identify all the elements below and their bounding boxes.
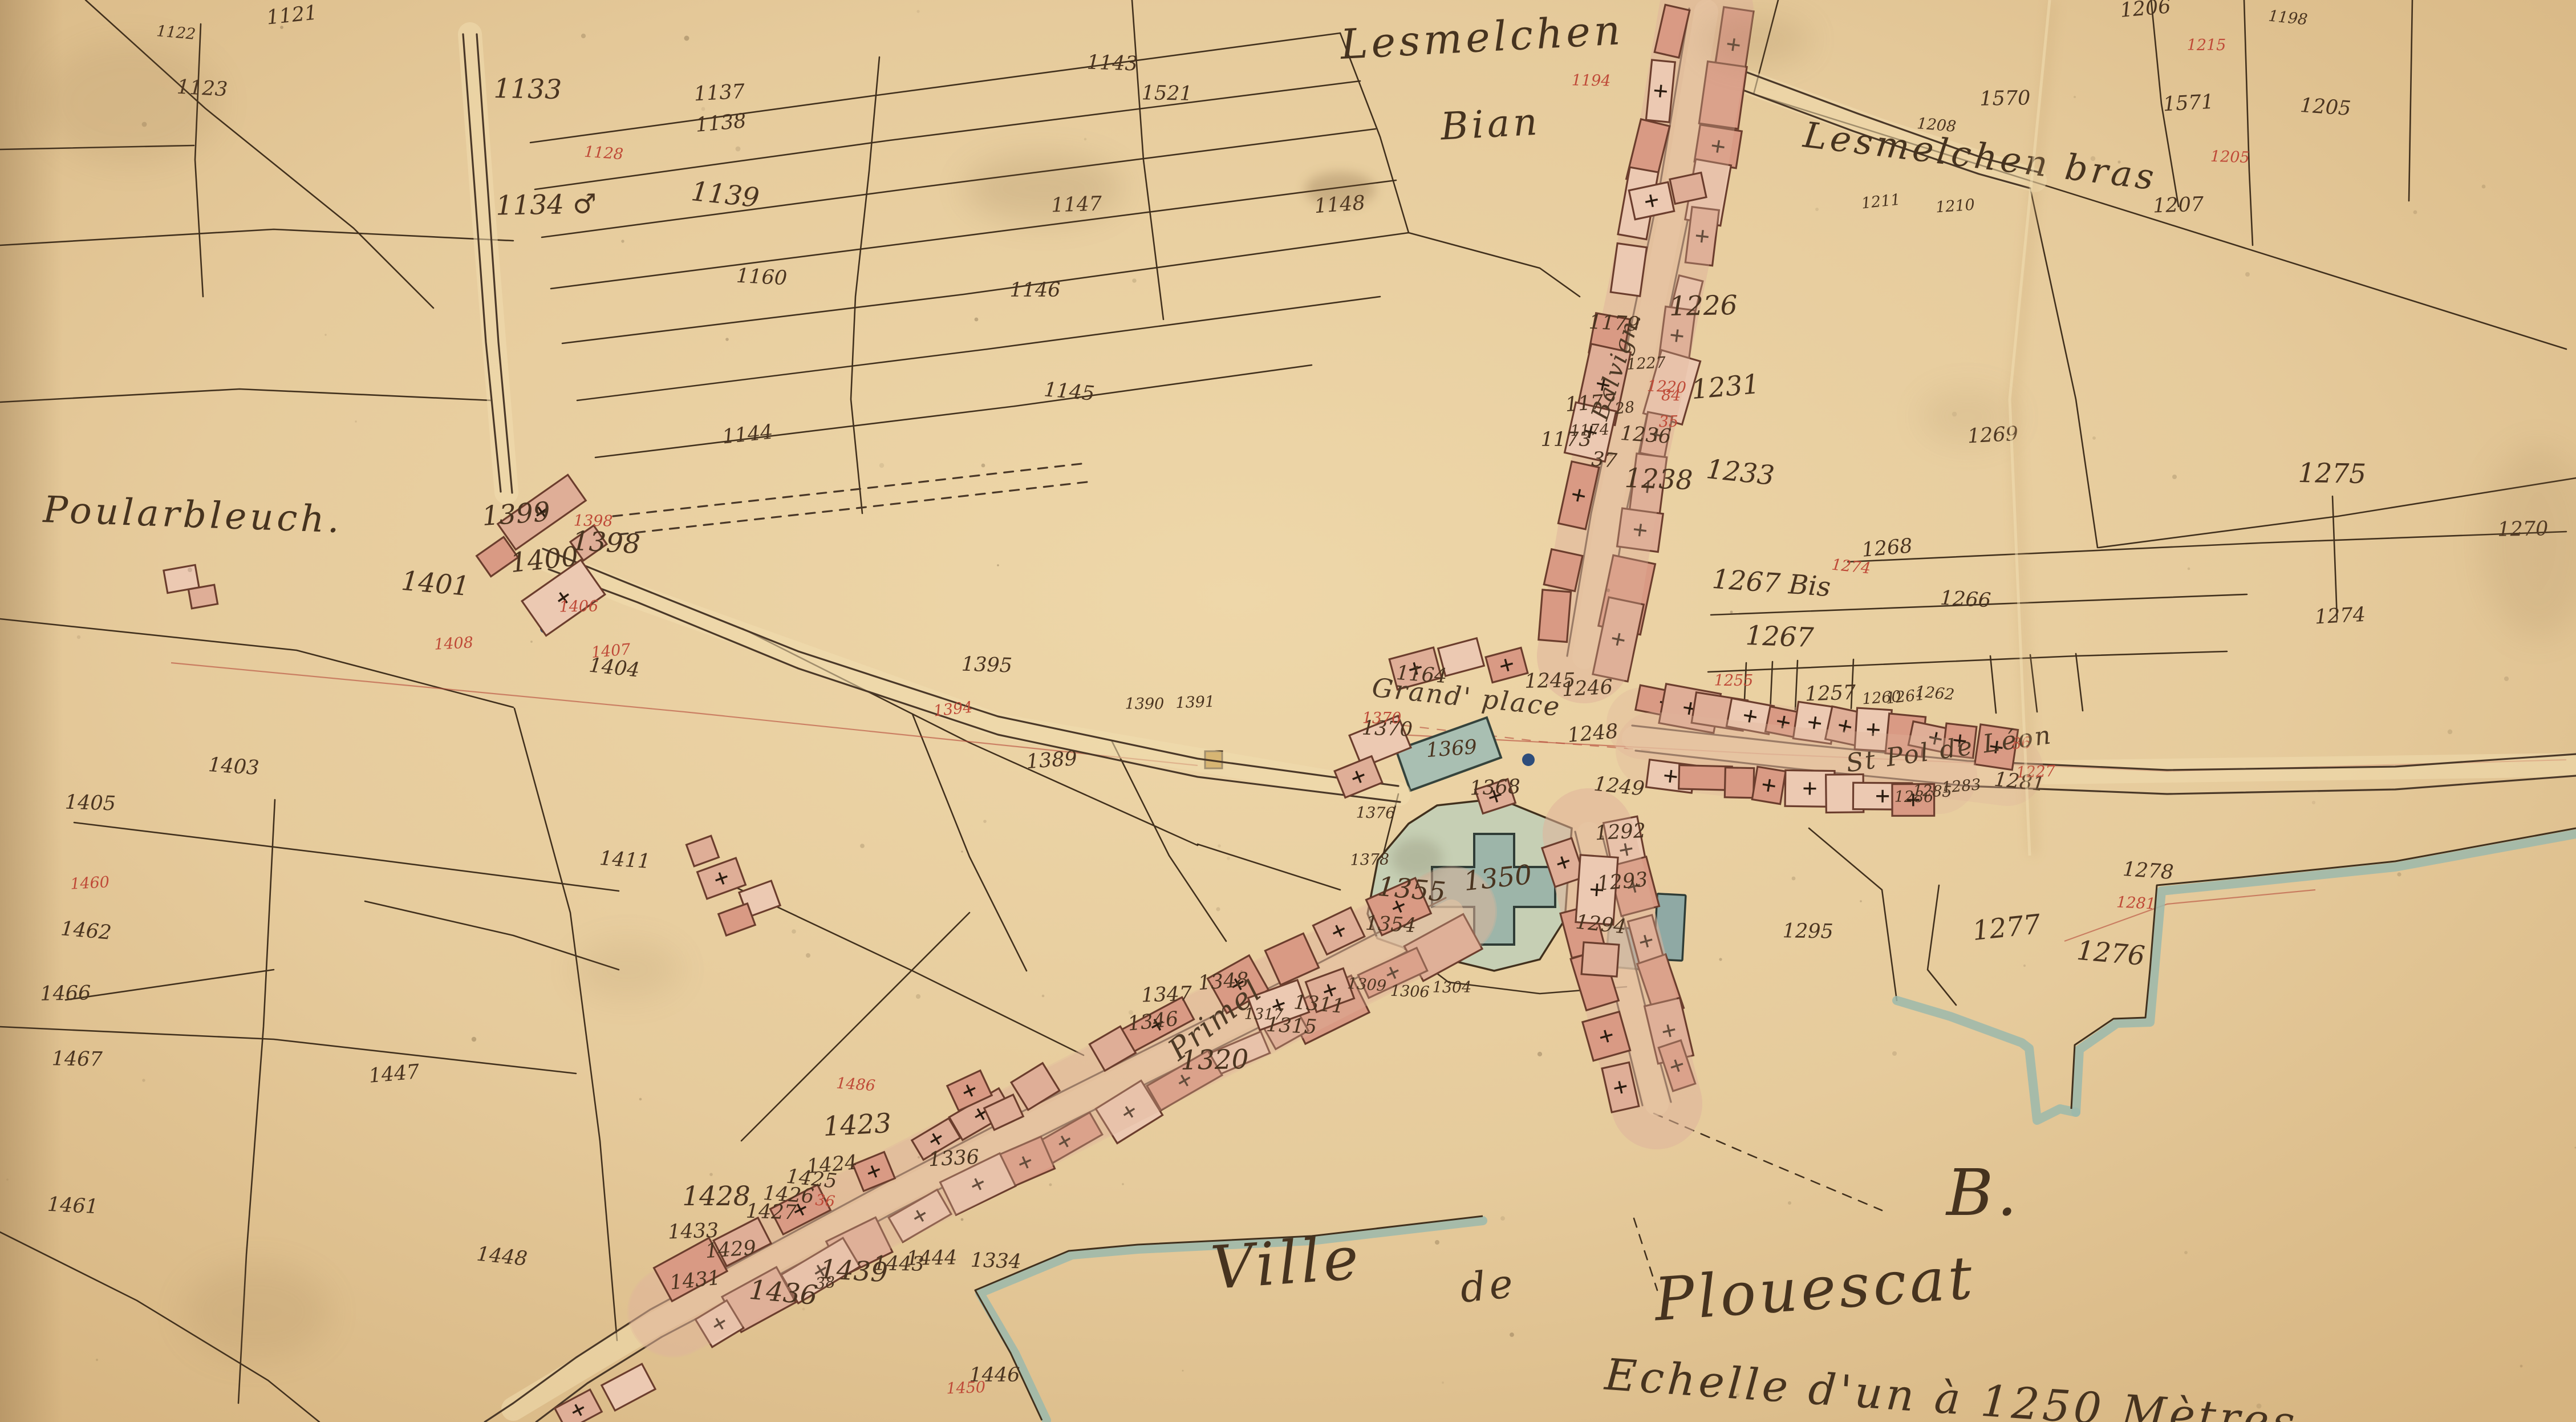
parcel-number: 1354 (1365, 912, 1417, 938)
parcel-number: 1215 (2187, 37, 2226, 54)
well-dot (1522, 753, 1535, 766)
parcel-number: 1292 (1595, 820, 1646, 845)
parcel-number: 1403 (208, 753, 260, 780)
label-de: de (1458, 1259, 1518, 1312)
building (1544, 549, 1583, 592)
parcel-number: 1521 (1141, 82, 1192, 106)
parcel-number: 1370 (1362, 710, 1402, 727)
parcel-number: 1270 (2497, 517, 2549, 541)
parcel-number: 1466 (40, 982, 91, 1006)
parcel-number: 1391 (1175, 693, 1215, 712)
parcel-number: 1137 (693, 80, 746, 106)
building (1725, 768, 1754, 798)
parcel-number: 1429 (704, 1237, 757, 1263)
parcel-number: 1460 (70, 873, 109, 893)
parcel-number: 1427 (745, 1200, 797, 1224)
parcel-number: 1347 (1141, 982, 1192, 1007)
parcel-number: 37 (1591, 448, 1618, 473)
parcel-number: 1147 (1050, 192, 1102, 217)
parcel-number: 1467 (51, 1047, 103, 1071)
parcel-number: 1257 (1804, 681, 1856, 706)
parcel-number: 1134 ♂ (496, 188, 597, 221)
parcel-number: 1395 (961, 653, 1012, 677)
parcel-number: 1444 (906, 1246, 958, 1270)
parcel-number: 1378 (1350, 850, 1389, 869)
parcel-number: 1275 (2298, 457, 2367, 490)
parcel-number: 1369 (1425, 736, 1478, 762)
parcel-number: 1205 (2299, 94, 2352, 120)
parcel-number: 1389 (1025, 747, 1078, 773)
parcel-number: 1486 (835, 1075, 876, 1095)
parcel-number: 1447 (368, 1060, 421, 1088)
parcel-number: 1123 (176, 76, 228, 102)
building (1670, 173, 1706, 204)
parcel-number: 1138 (695, 110, 747, 137)
parcel-number: 1246 (1561, 676, 1613, 702)
parcel-number: 1226 (1669, 290, 1738, 322)
parcel-number: 1227 (2016, 763, 2056, 781)
parcel-number: 1293 (1596, 868, 1649, 896)
parcel-number: 1461 (47, 1193, 99, 1219)
parcel-number: 38 (815, 1274, 836, 1293)
parcel-number: 1238 (1624, 463, 1693, 496)
parcel-number: 1248 (1567, 720, 1619, 747)
parcel-number: 1133 (493, 73, 562, 106)
parcel-number: 1309 (1346, 975, 1387, 995)
building (1539, 590, 1571, 642)
parcel-number: 1268 (1861, 534, 1913, 562)
parcel-number: 1355 (1376, 871, 1447, 908)
building (1581, 942, 1619, 977)
parcel-number: 1398 (574, 512, 613, 530)
parcel-number: 1255 (1714, 672, 1754, 690)
parcel-number: 1390 (1125, 695, 1165, 713)
label-ville: Ville (1208, 1223, 1364, 1303)
parcel-number: 1428 (682, 1181, 751, 1212)
parcel-number: 1143 (1086, 51, 1138, 75)
parcel-number: 1570 (1979, 87, 2031, 111)
parcel-number: 1262 (1914, 683, 1955, 704)
parcel-number: 1295 (1782, 919, 1833, 943)
parcel-number: 1207 (2152, 193, 2204, 217)
parcel-number: 1210 (1935, 196, 1975, 217)
parcel-number: 1399 (481, 496, 551, 532)
parcel-number: 1281 (2116, 893, 2156, 913)
parcel-number: 1205 (2210, 148, 2250, 167)
parcel-number: 1406 (559, 597, 598, 615)
parcel-number: 1401 (400, 565, 470, 602)
building (1752, 767, 1786, 804)
cadastral-map: 11211122112311331134 ♂113711381139112811… (0, 0, 2576, 1422)
building (188, 585, 217, 608)
parcel-number: 1311 (1293, 991, 1345, 1018)
parcel-number: 1276 (2075, 935, 2146, 972)
parcel-number: 1423 (822, 1108, 892, 1143)
parcel-number: 1128 (583, 143, 624, 164)
parcel-number: 1194 (1572, 71, 1611, 90)
parcel-number: 1148 (1313, 192, 1366, 218)
parcel-number: 1334 (970, 1249, 1021, 1273)
parcel-number: 1286 (1895, 788, 1934, 806)
parcel-number: 1306 (1390, 982, 1430, 1001)
parcel-number: 1145 (1043, 378, 1096, 406)
parcel-number: 1122 (156, 22, 196, 43)
parcel-number: 1436 (748, 1274, 818, 1311)
parcel-number: 1278 (2122, 858, 2175, 884)
parcel-number: 1266 (1940, 587, 1991, 613)
parcel-number: 1304 (1433, 979, 1472, 996)
building (1610, 244, 1646, 297)
parcel-number: 1274 (2314, 603, 2366, 629)
parcel-number: 1174 (1570, 421, 1610, 440)
parcel-number: 36 (814, 1191, 835, 1210)
parcel-number: 35 (1658, 413, 1678, 431)
label-lesmelchen-bian-2: Bian (1439, 99, 1541, 148)
label-section-letter: B. (1945, 1156, 2021, 1230)
parcel-number: 1146 (1009, 279, 1060, 302)
parcel-number: 1267 (1745, 620, 1815, 654)
parcel-number: 1411 (599, 847, 651, 873)
building (1646, 60, 1675, 122)
parcel-number: 1160 (736, 265, 788, 290)
parcel-number: 1269 (1967, 423, 2019, 448)
parcel-number: 1368 (1469, 775, 1520, 800)
parcel-number: 1398 (571, 525, 641, 560)
parcel-number: 1408 (433, 634, 473, 654)
parcel-number: 1450 (946, 1379, 986, 1397)
parcel-number: 1336 (928, 1146, 980, 1172)
parcel-number: 1462 (60, 917, 112, 945)
parcel-number: 1571 (2163, 91, 2214, 116)
parcel-number: 84 (1661, 387, 1681, 405)
parcel-number: 1376 (1356, 804, 1395, 822)
parcel-number: 1405 (64, 791, 116, 815)
parcel-number: 1231 (1690, 368, 1761, 406)
